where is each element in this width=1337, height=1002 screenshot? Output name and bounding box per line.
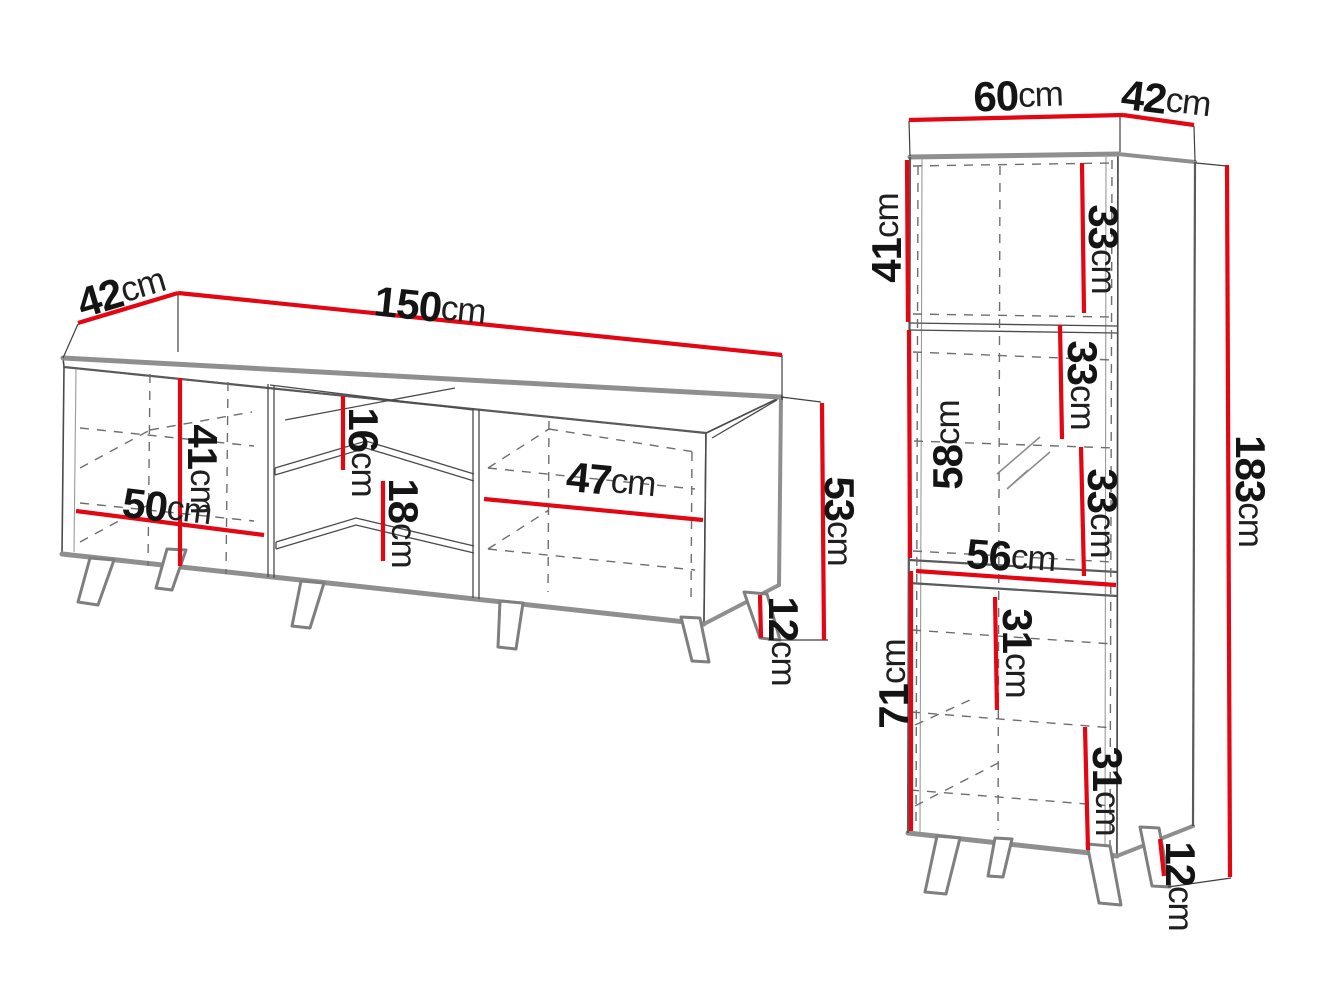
cab-label-leg-height: 12cm <box>1158 841 1205 930</box>
cab-dim-line-58 <box>909 330 910 558</box>
furniture-dimension-diagram: 42cm 150cm 41cm 50cm 16cm 18cm 47cm 53cm… <box>0 0 1337 1002</box>
cab-label-shelf-31b: 31cm <box>1085 746 1132 835</box>
cab-label-shelf-33c: 33cm <box>1080 468 1127 557</box>
cab-label-width: 60cm <box>973 70 1064 120</box>
tv-label-body-height: 53cm <box>817 476 864 565</box>
cab-label-middle-door: 58cm <box>924 400 971 489</box>
tv-right-back-edge <box>779 397 781 585</box>
tv-stand-drawing: 42cm 150cm 41cm 50cm 16cm 18cm 47cm 53cm… <box>62 256 864 686</box>
cabinet-top-edge <box>910 154 1118 157</box>
cab-label-shelf-31a: 31cm <box>995 608 1042 697</box>
tv-label-width: 150cm <box>372 277 488 335</box>
cab-label-shelf-33b: 33cm <box>1060 340 1107 429</box>
cab-label-shelf-33a: 33cm <box>1081 204 1128 293</box>
tv-label-depth: 42cm <box>71 256 170 326</box>
cab-label-top-door: 41cm <box>863 193 910 282</box>
cabinet-drawing: 60cm 42cm 41cm 33cm 58cm 33cm 33cm 56cm … <box>863 70 1275 931</box>
cab-label-bottom-door: 71cm <box>870 639 917 728</box>
tv-label-lower-shelf: 18cm <box>381 478 428 567</box>
cab-dim-line-183 <box>1227 165 1230 877</box>
tv-label-leg-height: 12cm <box>761 596 808 685</box>
cab-label-total-height: 183cm <box>1228 435 1275 547</box>
diagram-canvas: 42cm 150cm 41cm 50cm 16cm 18cm 47cm 53cm… <box>0 0 1337 1002</box>
tv-label-upper-shelf: 16cm <box>341 407 388 496</box>
